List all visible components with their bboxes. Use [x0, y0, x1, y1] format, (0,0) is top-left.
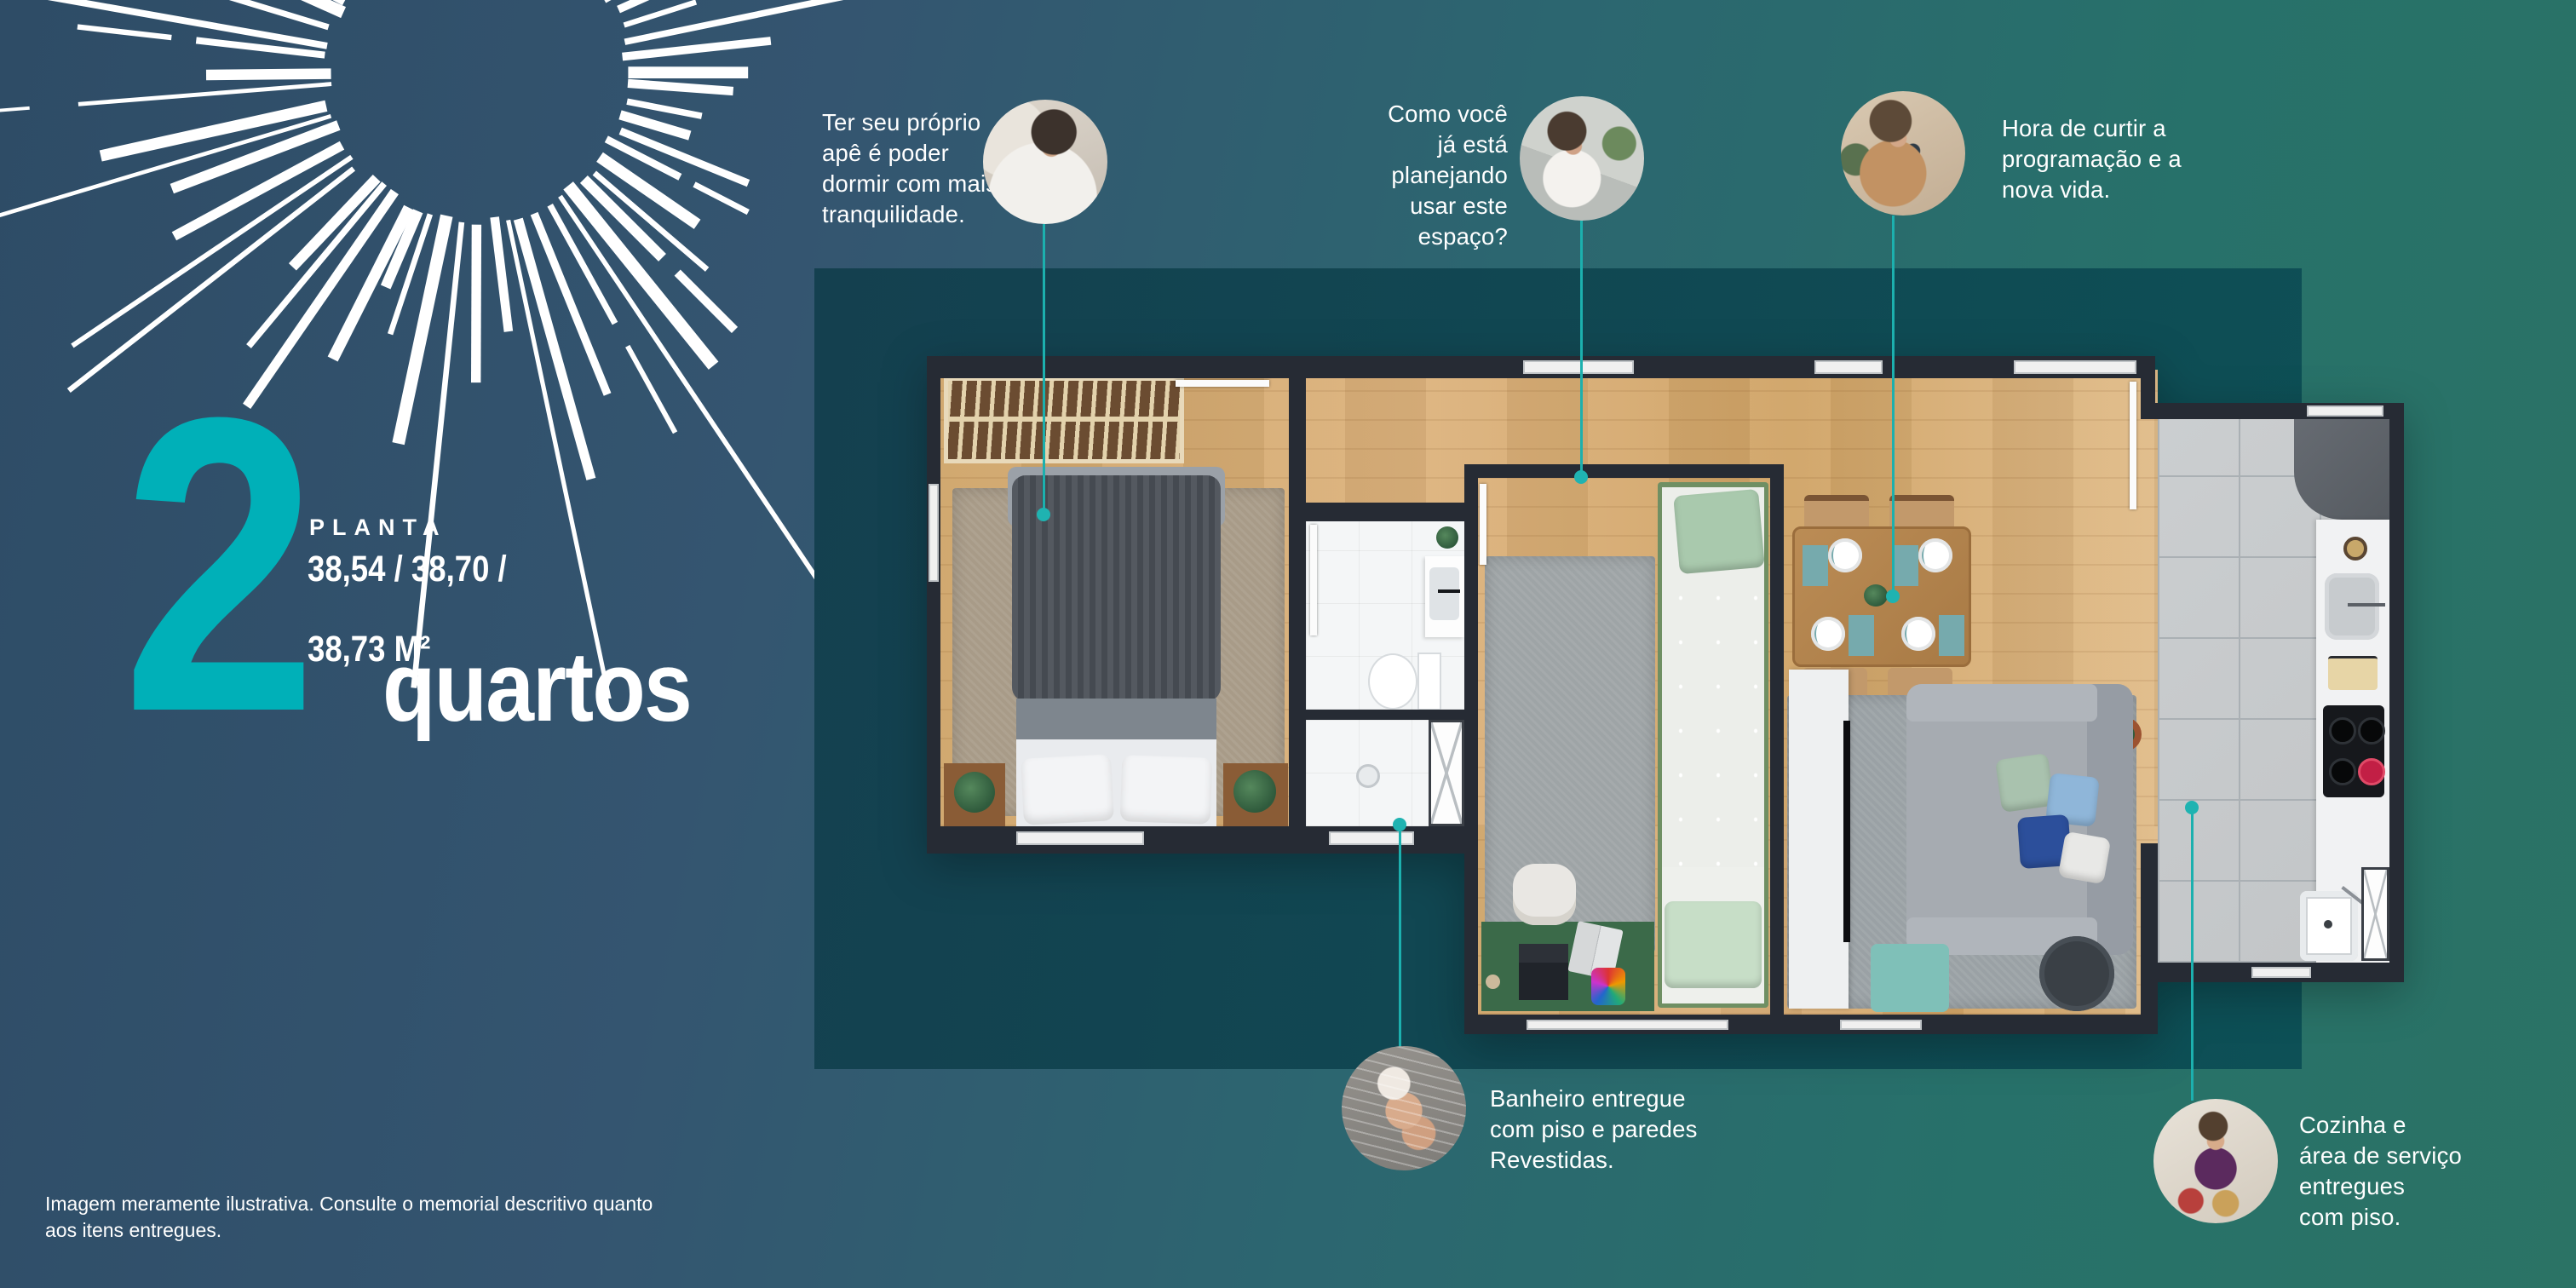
areas-line1: 38,54 / 38,70 / [308, 549, 507, 589]
service-shaft-x-icon [2364, 870, 2387, 958]
callout-kitchen-line [2191, 811, 2194, 1101]
door-leaf-bedroom1 [1176, 380, 1269, 387]
woman-phone-laptop-photo [1520, 96, 1644, 221]
woman-relaxing-sofa-photo [1841, 91, 1965, 216]
burner-4-red [2358, 758, 2385, 785]
placemat-3 [1849, 615, 1874, 656]
laptop [1519, 944, 1568, 1000]
callout-living-text: Hora de curtir a programação e a nova vi… [2002, 113, 2206, 205]
callout-living-dot [1886, 589, 1900, 603]
rooms-word: quartos [382, 637, 691, 736]
window-top-dining [1814, 360, 1883, 374]
callout-kitchen-dot [2185, 801, 2199, 814]
window-bathroom-bottom [1329, 831, 1414, 845]
wall-right [2389, 403, 2404, 982]
art-palette [1591, 968, 1625, 1005]
bathroom-plant [1436, 526, 1458, 549]
door-leaf-bathroom [1310, 525, 1317, 635]
toilet-bowl [1368, 653, 1417, 710]
marketing-slide: 2 PLANTA 38,54 / 38,70 / 38,73 M² quarto… [0, 0, 2576, 1288]
shower-drain [1356, 764, 1380, 788]
window-kitchen-bottom [2251, 967, 2311, 978]
callout-flexspace-line [1580, 221, 1583, 474]
woman-sleeping-photo [983, 100, 1107, 224]
callout-bathroom-dot [1393, 818, 1406, 831]
single-bed [1658, 482, 1768, 1008]
burner-1 [2329, 717, 2356, 745]
callout-bathroom-line [1399, 828, 1401, 1048]
kitchen-corner-cabinet [2294, 419, 2389, 520]
bed-pillow-left [1021, 754, 1114, 825]
window-bedroom1-bottom [1016, 831, 1144, 845]
planta-label: PLANTA [309, 515, 447, 541]
single-bed-top-pillow [1673, 489, 1765, 574]
side-table-round [2039, 936, 2114, 1011]
shaft-box [1429, 720, 1464, 826]
sofa-pillow-white [2058, 831, 2112, 885]
placemat-1 [1803, 545, 1828, 586]
plate-3 [1811, 617, 1845, 651]
bed-pillow-right [1120, 755, 1213, 825]
headboard-slat-panel [944, 377, 1184, 463]
plate-4 [1901, 617, 1935, 651]
callout-living-line [1892, 216, 1895, 593]
window-top-corridor [1523, 360, 1634, 374]
unit-number: 2 [122, 402, 312, 729]
callout-flexspace-text: Como você já está planejando usar este e… [1353, 99, 1508, 252]
plate-1 [1828, 538, 1862, 572]
wall-bedroom2-right [1770, 464, 1784, 1015]
nightstand-right-plant [1233, 770, 1276, 813]
window-kitchen-top [2307, 405, 2383, 417]
floorplan [927, 356, 2404, 1034]
sofa-pillow-sage [1995, 753, 2055, 813]
bed-blanket-band [1016, 699, 1216, 743]
sofa [1906, 684, 2133, 955]
disclaimer: Imagem meramente ilustrativa. Consulte o… [45, 1191, 653, 1244]
service-sink-drain [2324, 920, 2332, 929]
wall-bedroom2-top [1478, 464, 1770, 478]
cutting-board [2328, 656, 2378, 690]
burner-2 [2358, 717, 2385, 745]
window-bedroom2-bottom [1527, 1020, 1728, 1030]
callout-bedroom-text: Ter seu próprio apê é poder dormir com m… [822, 107, 1005, 230]
wall-bathroom-top [1306, 503, 1478, 521]
bathroom-faucet [1438, 589, 1460, 593]
window-bedroom1-left [929, 484, 939, 582]
tv [1843, 721, 1850, 942]
bathroom-sink [1429, 567, 1459, 620]
placemat-2 [1893, 545, 1918, 586]
door-leaf-bedroom2 [1480, 484, 1486, 565]
woman-cooking-photo [2153, 1099, 2278, 1223]
nightstand-left-plant [954, 772, 995, 813]
wall-bedroom1-right [1289, 370, 1306, 826]
callout-bedroom-dot [1037, 508, 1050, 521]
placemat-4 [1939, 615, 1964, 656]
wall-bathroom-divider [1306, 710, 1464, 720]
pouf [1871, 944, 1949, 1012]
kitchen-sink [2325, 573, 2379, 640]
disclaimer-line1: Imagem meramente ilustrativa. Consulte o… [45, 1191, 653, 1217]
mug [1486, 975, 1500, 989]
window-living-bottom [1840, 1020, 1922, 1030]
callout-kitchen-text: Cozinha e área de serviço entregues com … [2299, 1110, 2470, 1233]
window-top-living [2014, 360, 2136, 374]
service-shaft-box [2361, 867, 2389, 961]
door-leaf-entry [2130, 382, 2136, 509]
plate-2 [1918, 538, 1952, 572]
callout-flexspace-dot [1574, 470, 1588, 484]
woman-shower-photo [1342, 1046, 1466, 1170]
wall-bedroom2-left [1464, 464, 1478, 1015]
single-bed-mint-pillow [1665, 901, 1762, 988]
disclaimer-line2: aos itens entregues. [45, 1217, 653, 1244]
shaft-x-icon [1431, 722, 1462, 824]
wall-divider-lower [2141, 843, 2158, 1034]
cooktop [2323, 705, 2384, 797]
wall-left [927, 356, 940, 854]
kitchen-faucet [2348, 603, 2385, 607]
tv-rack [1789, 670, 1849, 1009]
sofa-armrest-top [1906, 684, 2097, 722]
counter-knob [2343, 537, 2367, 561]
callout-bedroom-line [1043, 224, 1045, 511]
table-centerpiece [1864, 584, 1888, 607]
desk-chair [1513, 864, 1576, 925]
callout-bathroom-text: Banheiro entregue com piso e paredes Rev… [1490, 1084, 1703, 1176]
toilet-tank [1417, 653, 1441, 710]
burner-3 [2329, 758, 2356, 785]
